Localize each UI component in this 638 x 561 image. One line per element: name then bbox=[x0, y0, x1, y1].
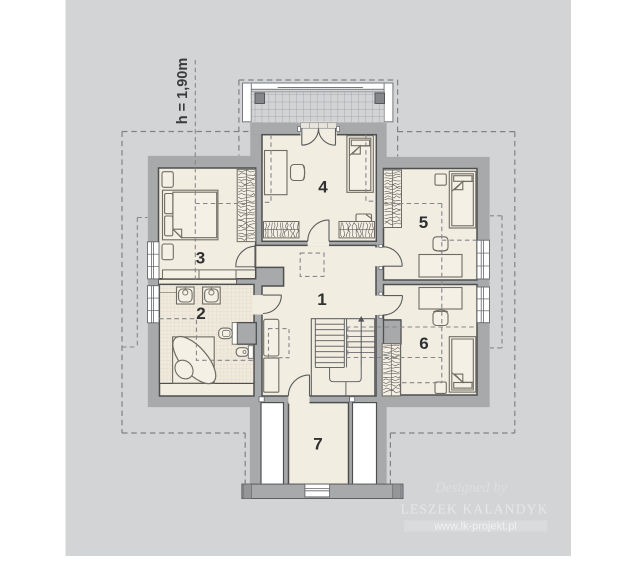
svg-text:5: 5 bbox=[419, 213, 428, 232]
svg-text:3: 3 bbox=[196, 249, 205, 268]
svg-text:h = 1,90m: h = 1,90m bbox=[175, 58, 191, 125]
svg-text:Designed by: Designed by bbox=[434, 480, 508, 496]
svg-text:7: 7 bbox=[313, 435, 322, 454]
svg-text:LESZEK KALANDYK: LESZEK KALANDYK bbox=[400, 502, 548, 517]
svg-text:6: 6 bbox=[419, 334, 428, 353]
svg-text:2: 2 bbox=[196, 304, 205, 323]
svg-text:4: 4 bbox=[318, 178, 328, 197]
svg-text:www.lk-projekt.pl: www.lk-projekt.pl bbox=[433, 521, 517, 533]
svg-text:1: 1 bbox=[317, 290, 326, 309]
